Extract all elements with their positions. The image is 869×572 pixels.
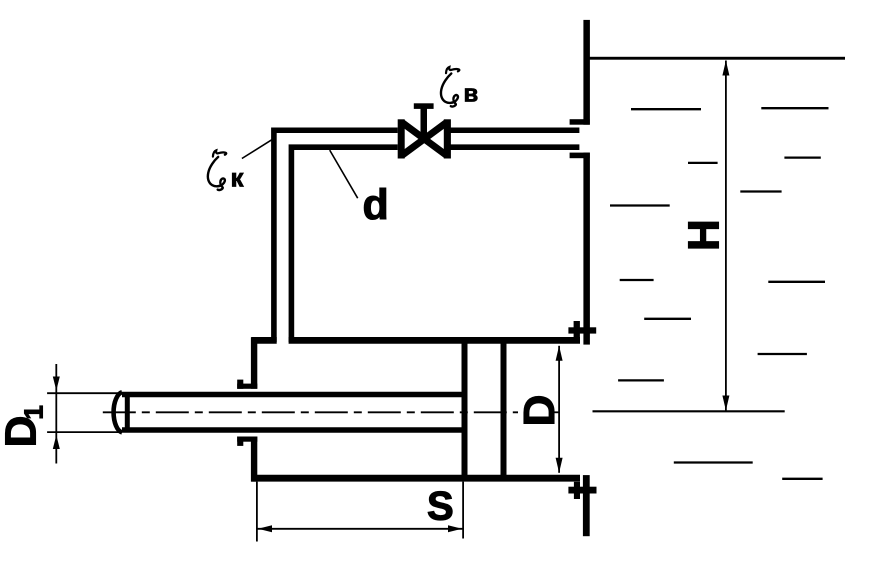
svg-text:к: к <box>231 163 245 193</box>
svg-text:d: d <box>363 181 389 229</box>
svg-text:D: D <box>515 395 564 427</box>
svg-text:S: S <box>427 485 454 529</box>
svg-text:H: H <box>680 219 729 251</box>
svg-text:в: в <box>464 81 479 108</box>
